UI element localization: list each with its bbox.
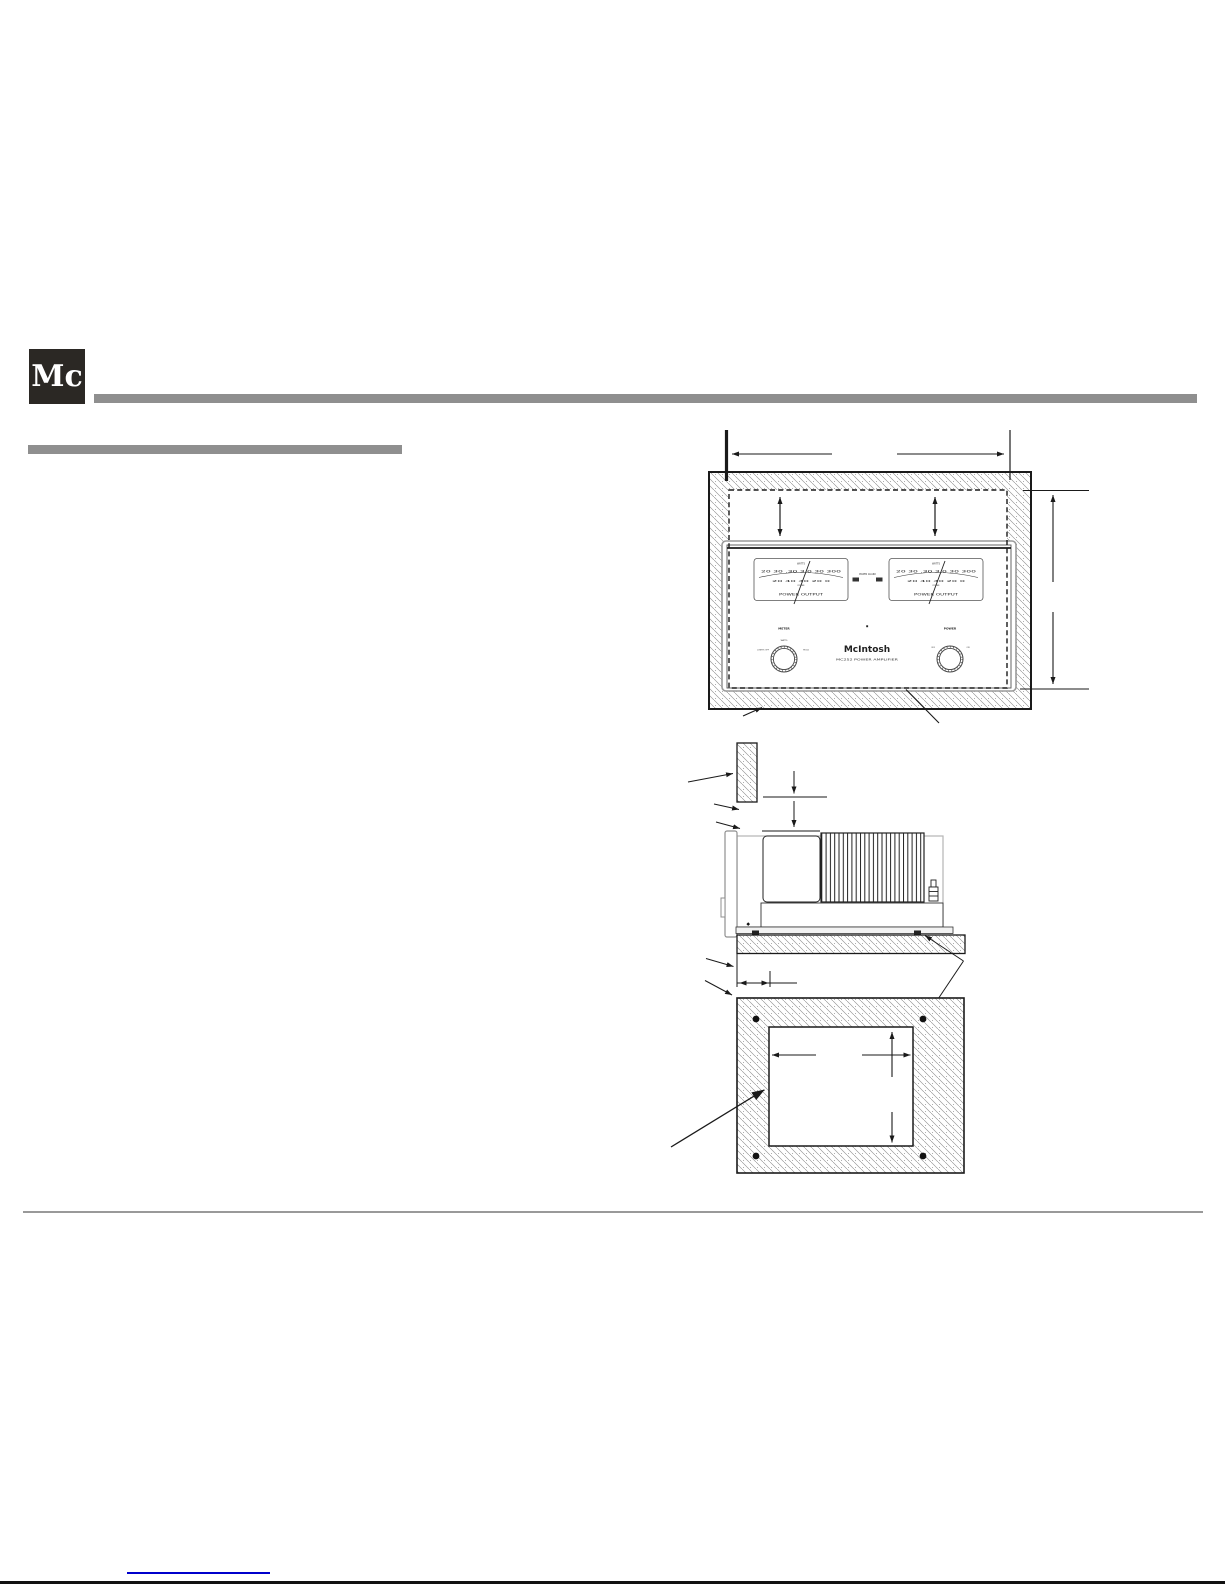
power-guard-led-right <box>876 578 883 582</box>
meter-knob-pos-top: WATTS <box>781 639 788 642</box>
bottom-shelf-view <box>671 998 964 1173</box>
amplifier-front-panel: WATTS 20 30 .30 3.0 30 300 20 40 40 20 0… <box>722 541 1016 691</box>
left-power-meter: WATTS 20 30 .30 3.0 30 300 20 40 40 20 0… <box>754 559 848 605</box>
transformer-housing <box>763 836 820 902</box>
meter-knob-pos-left: LIGHTS OFF <box>757 650 770 652</box>
meter-watts-label: WATTS <box>797 563 806 566</box>
meter-bottom-label: POWER OUTPUT <box>779 593 824 597</box>
meter-watts-label: WATTS <box>932 563 941 566</box>
chassis-lower-band <box>761 903 943 927</box>
brand-logo-text: McIntosh <box>844 645 890 655</box>
model-text: MC252 POWER AMPLIFIER <box>836 658 898 662</box>
manual-page: Mc <box>0 0 1225 1585</box>
heatsink-fins <box>821 833 924 902</box>
installation-diagrams: WATTS 20 30 .30 3.0 30 300 20 40 40 20 0… <box>0 0 1225 1585</box>
meter-knob-pos-right: HOLD <box>803 650 809 652</box>
power-knob-label: POWER <box>944 627 957 631</box>
amplifier-side-profile <box>721 831 953 937</box>
shelf-section-hatched <box>737 935 965 954</box>
power-knob-pos-right: ON <box>966 647 970 649</box>
front-panel-edge <box>725 831 737 937</box>
right-power-meter: WATTS 20 30 .30 3.0 30 300 20 40 40 20 0… <box>889 559 983 605</box>
shelf-cutout-opening <box>769 1027 913 1146</box>
rear-terminal <box>929 880 938 901</box>
footer-divider-rule <box>23 1211 1203 1213</box>
meter-scale-row1: 20 30 .30 3.0 30 300 <box>896 570 976 574</box>
power-guard-led-left <box>853 578 860 582</box>
page-bottom-edge-line <box>0 1581 1225 1584</box>
mounting-hole-top-right <box>920 1016 927 1023</box>
side-view <box>688 743 965 1016</box>
panel-center-dot <box>866 625 868 627</box>
meter-knob-label: METER <box>778 627 790 631</box>
mounting-panel-section <box>737 743 757 802</box>
front-foot <box>752 931 759 935</box>
rear-foot <box>914 931 921 935</box>
mounting-hole-top-left <box>753 1016 760 1023</box>
rear-clearance-dimension <box>762 771 827 831</box>
mounting-hole-bottom-left <box>753 1153 760 1160</box>
mounting-hole-bottom-right <box>920 1153 927 1160</box>
front-cutout-view: WATTS 20 30 .30 3.0 30 300 20 40 40 20 0… <box>709 430 1089 723</box>
setback-dimension <box>737 950 797 987</box>
shelf-callout-arrows <box>705 959 734 996</box>
power-guard-label: POWER GUARD <box>859 573 876 576</box>
chassis-marker-dot <box>746 922 750 926</box>
front-handle <box>721 898 725 917</box>
footer-link[interactable] <box>127 1572 270 1574</box>
meter-scale-row1: 20 30 .30 3.0 30 300 <box>761 570 841 574</box>
side-view-callout-arrows <box>688 774 740 829</box>
meter-bottom-label: POWER OUTPUT <box>914 593 959 597</box>
